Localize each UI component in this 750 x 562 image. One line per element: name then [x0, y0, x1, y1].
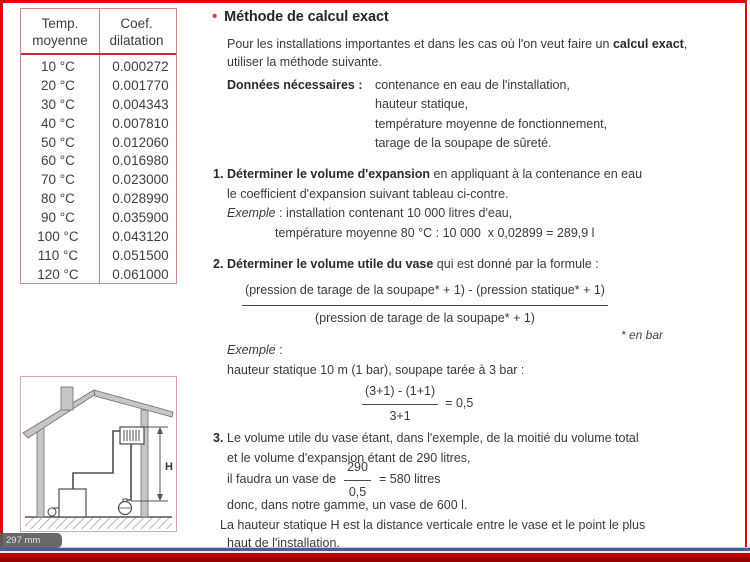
table-row: 100 °C0.043120: [21, 228, 176, 247]
numeric-fraction-numerator: (3+1) - (1+1): [362, 382, 438, 405]
cell-temp: 10 °C: [21, 58, 95, 77]
table-row: 110 °C0.051500: [21, 247, 176, 266]
required-data-block: Données nécessaires : contenance en eau …: [227, 76, 607, 153]
required-data-items: contenance en eau de l'installation, hau…: [375, 76, 607, 153]
cell-temp: 30 °C: [21, 96, 95, 115]
step1-example-label: Exemple: [227, 206, 276, 220]
table-row: 10 °C0.000272: [21, 58, 176, 77]
cell-temp: 80 °C: [21, 190, 95, 209]
table-row: 70 °C0.023000: [21, 171, 176, 190]
table-row: 90 °C0.035900: [21, 209, 176, 228]
cell-coef: 0.004343: [95, 96, 176, 115]
intro-line2: utiliser la méthode suivante.: [227, 54, 687, 72]
h-label: H: [165, 461, 173, 473]
cell-coef: 0.023000: [95, 171, 176, 190]
step1-example-line2: température moyenne 80 °C : 10 000 x 0,0…: [213, 224, 642, 244]
step2-example-colon: :: [276, 343, 283, 357]
cell-temp: 100 °C: [21, 228, 95, 247]
page-title: Méthode de calcul exact: [224, 9, 389, 25]
intro-line1: Pour les installations importantes et da…: [227, 36, 687, 54]
cell-temp: 70 °C: [21, 171, 95, 190]
pressure-formula: (pression de tarage de la soupape* + 1) …: [203, 281, 647, 328]
pipe-radiator-to-boiler: [73, 431, 120, 489]
step1-number: 1.: [213, 165, 227, 185]
step1-bold: Déterminer le volume d'expansion: [227, 167, 430, 181]
step2-example-label-line: Exemple :: [227, 341, 283, 361]
cell-temp: 60 °C: [21, 152, 95, 171]
roof-right-slope: [94, 390, 173, 417]
table-body: 10 °C0.000272 20 °C0.001770 30 °C0.00434…: [21, 58, 176, 285]
chimney: [61, 387, 73, 410]
required-item: tarage de la soupape de sûreté.: [375, 134, 607, 153]
required-item: contenance en eau de l'installation,: [375, 76, 607, 95]
cell-coef: 0.051500: [95, 247, 176, 266]
header-temp-line2: moyenne: [21, 32, 99, 49]
step2-example-label: Exemple: [227, 343, 276, 357]
step2-bold: Déterminer le volume utile du vase: [227, 257, 433, 271]
cell-coef: 0.012060: [95, 134, 176, 153]
step2-line1: 2.Déterminer le volume utile du vase qui…: [213, 255, 599, 275]
step1-block: 1.Déterminer le volume d'expansion en ap…: [213, 165, 642, 243]
house-diagram: H: [20, 376, 177, 532]
table-row: 120 °C0.061000: [21, 266, 176, 285]
step2-example-line: hauteur statique 10 m (1 bar), soupape t…: [227, 361, 524, 381]
table-row: 50 °C0.012060: [21, 134, 176, 153]
window-red-bar: [0, 553, 750, 562]
formula-numerator: (pression de tarage de la soupape* + 1) …: [242, 281, 608, 306]
ground-hatch: [25, 517, 172, 529]
step3-line1-text: Le volume utile du vase étant, dans l'ex…: [227, 431, 639, 445]
section-title-row: •Méthode de calcul exact: [212, 8, 389, 25]
table-header-coef: Coef. dilatation: [99, 15, 174, 49]
vessel-fraction-numerator: 290: [344, 458, 371, 481]
cell-temp: 20 °C: [21, 77, 95, 96]
required-data-label: Données nécessaires :: [227, 76, 375, 95]
numeric-formula: (3+1) - (1+1) 3+1 = 0,5: [362, 382, 473, 426]
cell-temp: 40 °C: [21, 115, 95, 134]
cell-temp: 120 °C: [21, 266, 95, 285]
cell-coef: 0.001770: [95, 77, 176, 96]
step1-example-line1: Exemple : installation contenant 10 000 …: [213, 204, 642, 224]
numeric-fraction-denominator: 3+1: [362, 405, 438, 427]
house-diagram-svg: H: [21, 377, 176, 531]
vessel-size-pre: il faudra un vase de: [227, 470, 336, 490]
cell-temp: 50 °C: [21, 134, 95, 153]
vessel-size-post: = 580 litres: [379, 470, 441, 490]
left-wall: [37, 424, 44, 517]
step3-conclusion: donc, dans notre gamme, un vase de 600 l…: [227, 496, 467, 516]
table-row: 30 °C0.004343: [21, 96, 176, 115]
intro-line1-post: ,: [684, 37, 687, 51]
cell-coef: 0.035900: [95, 209, 176, 228]
step1-line1-rest: en appliquant à la contenance en eau: [430, 167, 642, 181]
table-row: 80 °C0.028990: [21, 190, 176, 209]
cell-coef: 0.028990: [95, 190, 176, 209]
pipe-radiator-to-vessel: [125, 444, 131, 500]
footer-line1: La hauteur statique H est la distance ve…: [220, 516, 645, 536]
intro-line1-pre: Pour les installations importantes et da…: [227, 37, 613, 51]
cell-coef: 0.000272: [95, 58, 176, 77]
required-item: hauteur statique,: [375, 95, 607, 114]
header-coef-line2: dilatation: [99, 32, 174, 49]
step3-line1: 3.Le volume utile du vase étant, dans l'…: [213, 429, 639, 449]
step1-example-rest: : installation contenant 10 000 litres d…: [276, 206, 513, 220]
cell-temp: 90 °C: [21, 209, 95, 228]
table-header-temp: Temp. moyenne: [21, 15, 99, 49]
cell-coef: 0.016980: [95, 152, 176, 171]
intro-paragraph: Pour les installations importantes et da…: [227, 36, 687, 71]
table-header-rule: [21, 53, 176, 55]
required-item: température moyenne de fonctionnement,: [375, 115, 607, 134]
table-row: 20 °C0.001770: [21, 77, 176, 96]
header-temp-line1: Temp.: [21, 15, 99, 32]
step3-number: 3.: [213, 429, 227, 449]
header-coef-line1: Coef.: [99, 15, 174, 32]
step1-line2: le coefficient d'expansion suivant table…: [213, 185, 642, 205]
step2-block: 2.Déterminer le volume utile du vase qui…: [213, 255, 599, 275]
pump: [48, 508, 56, 516]
boiler: [59, 489, 86, 517]
step2-line1-rest: qui est donné par la formule :: [433, 257, 598, 271]
cell-coef: 0.007810: [95, 115, 176, 134]
step1-line1: 1.Déterminer le volume d'expansion en ap…: [213, 165, 642, 185]
table-row: 60 °C0.016980: [21, 152, 176, 171]
page-size-tooltip: 297 mm: [0, 533, 62, 548]
cell-coef: 0.043120: [95, 228, 176, 247]
dilatation-table: Temp. moyenne Coef. dilatation 10 °C0.00…: [20, 8, 177, 284]
h-arrow-head-bottom: [157, 494, 163, 501]
step2-number: 2.: [213, 255, 227, 275]
h-arrow-head-top: [157, 427, 163, 434]
cell-coef: 0.061000: [95, 266, 176, 285]
numeric-fraction-result: = 0,5: [445, 394, 473, 414]
numeric-fraction: (3+1) - (1+1) 3+1: [362, 382, 438, 426]
bullet-icon: •: [212, 8, 217, 25]
table-row: 40 °C0.007810: [21, 115, 176, 134]
bar-footnote: * en bar: [205, 328, 663, 342]
cell-temp: 110 °C: [21, 247, 95, 266]
intro-line1-bold: calcul exact: [613, 37, 684, 51]
formula-denominator: (pression de tarage de la soupape* + 1): [203, 309, 647, 329]
